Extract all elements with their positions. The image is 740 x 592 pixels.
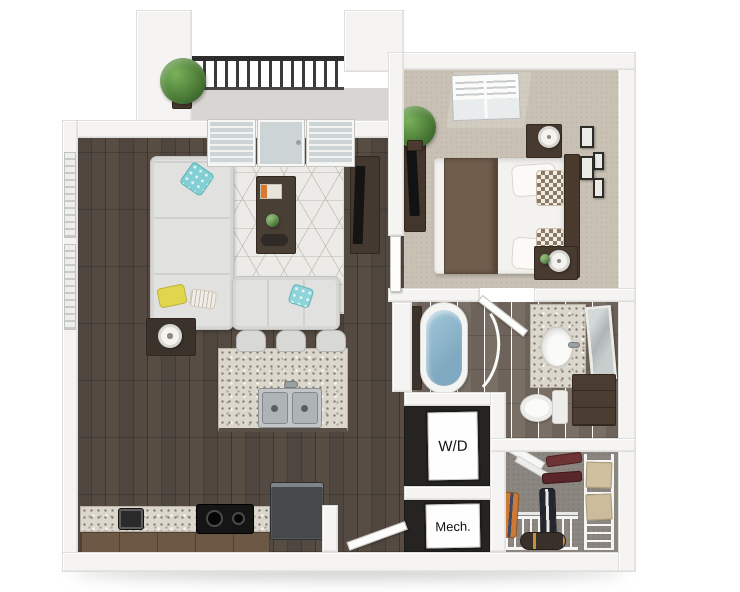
bedroom-top-wall — [392, 52, 636, 70]
floorplan-render: W/D Mech. — [0, 0, 740, 592]
bed-bath-wall-left — [388, 288, 480, 302]
right-wall — [618, 52, 636, 572]
bottom-wall — [62, 552, 636, 572]
bar-stool-1 — [236, 330, 266, 352]
wall-art-frame-1 — [580, 126, 594, 148]
duffel-bag — [520, 532, 566, 550]
balcony-floor — [192, 88, 392, 120]
hanging-garment-dark — [539, 488, 557, 539]
storage-box-2 — [585, 493, 612, 520]
toilet-tank — [552, 390, 568, 424]
sofa-sectional-horizontal — [232, 276, 340, 330]
divider-wall-lower — [392, 302, 412, 392]
nightstand-plant — [540, 254, 550, 264]
bedroom-door — [390, 236, 401, 292]
balcony-plant — [160, 58, 206, 104]
mechanical-unit: Mech. — [426, 504, 481, 549]
refrigerator — [270, 482, 324, 540]
kitchen-cabinet-face — [80, 532, 270, 554]
pillow-print — [189, 288, 217, 309]
magazine — [260, 184, 282, 199]
closet-top-wall — [490, 438, 636, 452]
vanity-faucet — [568, 342, 580, 348]
wall-art-frame-3 — [580, 156, 594, 180]
coffee-table-plant — [266, 214, 279, 227]
bar-stool-3 — [316, 330, 346, 352]
kitchen-stub-wall — [322, 505, 338, 552]
sink-faucet — [284, 381, 298, 388]
living-window-1 — [64, 152, 76, 238]
toilet-bowl — [520, 394, 554, 422]
bed-pillow-pattern-1 — [536, 170, 564, 206]
balcony-door-handle-icon — [296, 140, 301, 145]
balcony-railing — [192, 56, 344, 90]
nightstand-lamp-bottom — [548, 250, 570, 272]
burner-small — [232, 512, 245, 525]
washer-dryer-right-wall — [490, 392, 506, 552]
bed-bath-wall-right — [534, 288, 636, 302]
floor-lamp — [158, 324, 182, 348]
coffee-maker — [118, 508, 144, 530]
storage-box-1 — [586, 462, 613, 489]
mechanical-label: Mech. — [435, 518, 471, 534]
burner-large — [206, 510, 223, 527]
sink-drain-right — [301, 405, 308, 412]
coffee-table-tray — [261, 234, 288, 246]
bar-stool-2 — [276, 330, 306, 352]
wall-art-frame-4 — [593, 178, 604, 198]
balcony-window-right — [307, 120, 354, 166]
bathroom-cabinet — [572, 374, 616, 426]
balcony-door-unit — [208, 120, 354, 166]
divider-wall-upper — [388, 52, 404, 236]
cooktop — [196, 504, 254, 534]
balcony-window-left — [208, 120, 255, 166]
washer-dryer-unit: W/D — [427, 412, 478, 481]
nightstand-lamp-top — [538, 126, 560, 148]
living-window-2 — [64, 244, 76, 330]
washer-dryer-label: W/D — [438, 437, 467, 455]
bed-blanket — [444, 158, 498, 274]
sink-drain-left — [271, 405, 278, 412]
wall-art-frame-2 — [593, 152, 604, 170]
bedroom-plant-pot — [407, 140, 423, 151]
